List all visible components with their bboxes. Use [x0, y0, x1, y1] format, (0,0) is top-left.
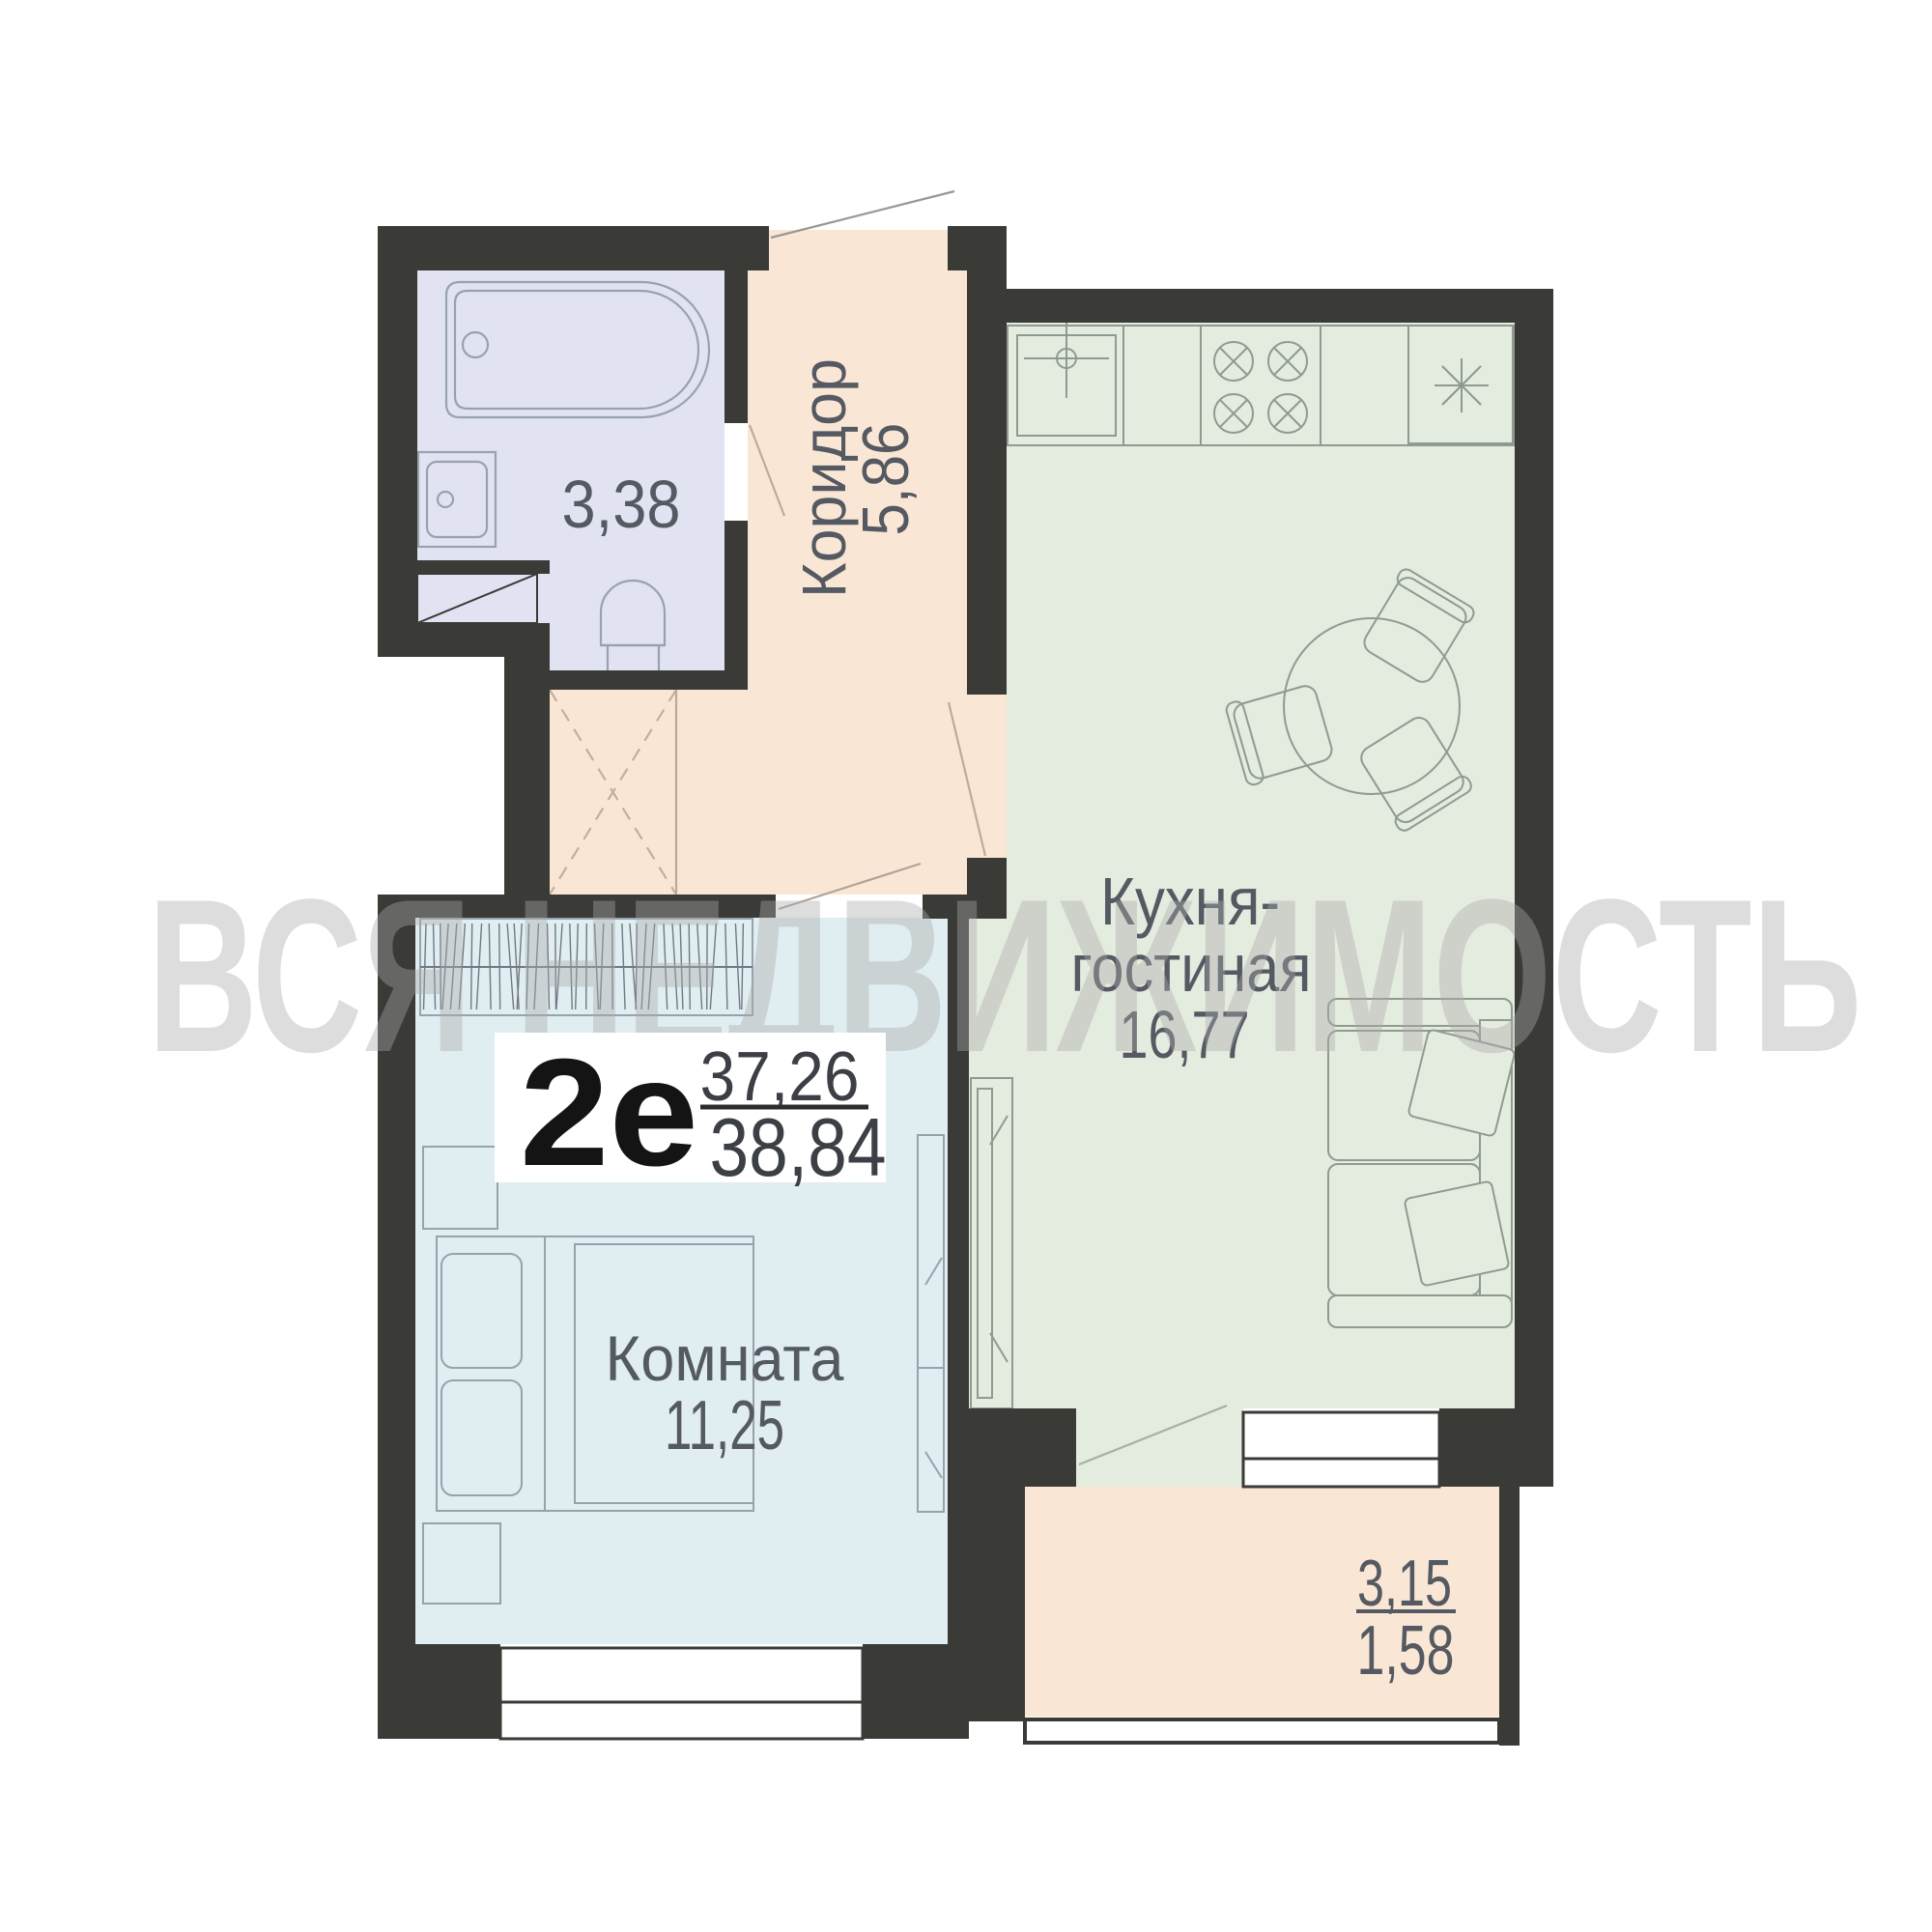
svg-text:38,84: 38,84 — [710, 1102, 887, 1194]
svg-text:3,38: 3,38 — [562, 467, 681, 542]
svg-text:5,86: 5,86 — [849, 423, 923, 536]
svg-text:1,58: 1,58 — [1357, 1612, 1455, 1690]
svg-text:ВСЯ НЕДВИЖИМОСТЬ: ВСЯ НЕДВИЖИМОСТЬ — [148, 853, 1862, 1097]
svg-text:11,25: 11,25 — [665, 1387, 784, 1464]
svg-text:Комната: Комната — [606, 1322, 844, 1394]
svg-text:3,15: 3,15 — [1357, 1547, 1452, 1620]
svg-text:2е: 2е — [520, 1028, 698, 1198]
